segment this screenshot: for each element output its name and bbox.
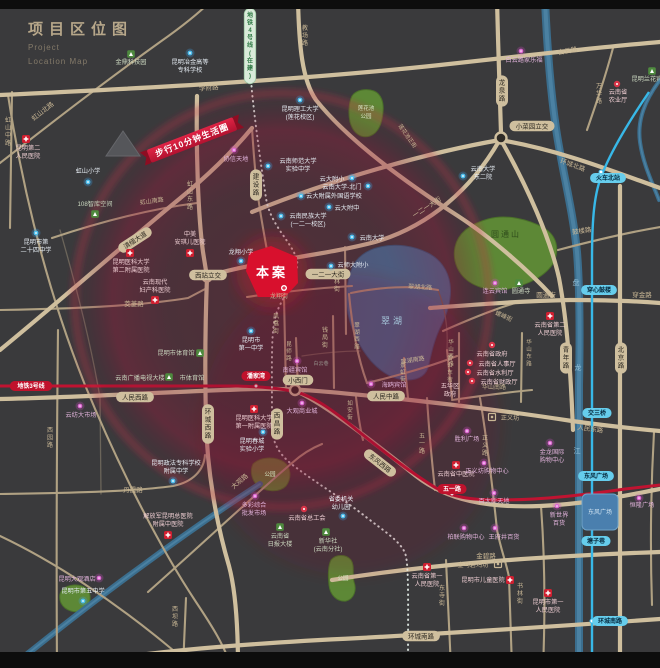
school-icon-dot <box>35 232 37 234</box>
capsule-text: 北京路 <box>618 345 625 369</box>
poi-label: 云南省政府 <box>477 350 508 358</box>
school-icon-dot <box>172 480 174 482</box>
road-label-4: 虹山东路 <box>187 180 193 211</box>
government-icon-dot <box>469 362 471 364</box>
road-label-46: 翠湖 <box>381 316 405 326</box>
school-icon-dot <box>189 52 191 54</box>
poi-label: 昆明市 <box>242 336 261 344</box>
road-label-49: 盘 <box>573 278 580 287</box>
road-label-28: 钱局街 <box>322 326 328 349</box>
poi-label: 云南省财政厅 <box>480 378 517 386</box>
poi-label: (云南分社) <box>314 545 343 553</box>
poi-label: 昆明市第五中学 <box>61 587 104 595</box>
school-icon-dot <box>267 165 269 167</box>
poi-label: 南疆宾馆 <box>283 366 308 374</box>
poi-label: 第二附属医院 <box>112 266 149 274</box>
mall-icon-dot <box>549 442 551 444</box>
road-label-18: 五一路 <box>419 433 425 455</box>
road-label-44: 公园 <box>264 471 276 478</box>
poi-label: 大观商业城 <box>287 407 318 415</box>
government-icon-dot <box>616 83 618 85</box>
poi-label: 云大附属外国语学校 <box>306 192 362 200</box>
interchange-node-2 <box>496 133 507 144</box>
school-icon-dot <box>280 215 282 217</box>
poi-label: 人民医院 <box>415 580 440 588</box>
poi-label: 附属中学 <box>164 467 189 475</box>
road-label-27: 凤翥街 <box>273 313 279 335</box>
capsule-小西门-2: 小西门 <box>283 375 314 386</box>
capsule-text: 穿心鼓楼 <box>587 286 611 294</box>
poi-label: 云南省总工会 <box>288 514 325 522</box>
poi-label: (一二一校区) <box>290 220 325 228</box>
poi-label: 昆明市儿童医院 <box>461 576 504 584</box>
road-label-45: 公园 <box>337 575 349 582</box>
poi-label: 金马碧鸡坊 <box>458 561 489 569</box>
poi-云大附属外国语学校-9: 云大附属外国语学校 <box>297 192 362 201</box>
school-icon-dot <box>351 236 353 238</box>
capsule-text: 塘子巷 <box>587 537 605 545</box>
poi-label: 市体育馆 <box>180 374 205 382</box>
poi-label: 省委机关 <box>329 495 354 503</box>
poi-label: 人民医院 <box>538 329 563 337</box>
road-label-15: 书林街 <box>517 582 523 605</box>
capsule-text: 青年路 <box>563 344 570 369</box>
capsule-text: 地铁4号线(在建) <box>247 11 254 80</box>
school-icon-dot <box>262 431 264 433</box>
poi-label: 人民医院 <box>16 152 41 160</box>
poi-label: 云南大学-北门 <box>322 183 361 191</box>
government-icon-dot <box>491 344 493 346</box>
poi-label: 云南现代 <box>143 278 169 286</box>
poi-label: 108智库空间 <box>77 200 112 208</box>
school-icon-dot <box>299 99 301 101</box>
school-icon-dot <box>82 600 84 602</box>
capsule-text: 环城南路 <box>598 617 623 625</box>
poi-label: 幼儿园 <box>332 503 351 511</box>
poi-label: 协信天地 <box>224 155 249 163</box>
poi-label: 云南大学 <box>471 165 496 173</box>
poi-label: 购物中心 <box>540 456 565 464</box>
site-label: 本案 <box>256 265 288 280</box>
capsule-text: 人民中路 <box>373 391 400 400</box>
road-mid-5 <box>57 330 58 668</box>
road-label-41: 圆通山 <box>491 229 521 239</box>
poi-label: 云南省人事厅 <box>478 360 515 368</box>
poi-label: 柏联购物中心 <box>447 533 484 541</box>
poi-label: 王府井百货 <box>489 533 520 541</box>
capsule-人民中路-4: 人民中路 <box>367 391 405 402</box>
mall-icon-dot <box>638 497 640 499</box>
poi-label: 恒隆广场 <box>630 501 655 509</box>
mall-icon-dot <box>556 505 558 507</box>
school-icon-dot <box>240 260 242 262</box>
poi-label: 海鸥宾馆 <box>382 381 407 389</box>
school-icon-dot <box>367 185 369 187</box>
road-label-42: 莲花池 <box>358 104 375 112</box>
school-icon-dot <box>342 515 344 517</box>
poi-昆明市体育馆-57: 昆明市体育馆 <box>157 349 203 357</box>
road-label-3: 虹山中路 <box>5 116 11 147</box>
mall-icon-dot <box>520 50 522 52</box>
road-label-38: 白云巷 <box>313 360 328 367</box>
poi-label: 正义坊 <box>501 414 520 422</box>
landmark-icon-core <box>497 563 499 565</box>
school-icon-dot <box>462 175 464 177</box>
poi-label: 附属中医院 <box>153 520 184 528</box>
poi-label: 人民医院 <box>536 606 561 614</box>
capsule-text: 环城南路 <box>408 631 435 640</box>
capsule-龙泉路-9: 龙泉路 <box>496 75 508 106</box>
poi-label: 二十四中学 <box>21 246 52 254</box>
capsule-text: 西昌路 <box>274 411 281 435</box>
poi-label: 第一附属医院 <box>235 422 272 430</box>
poi-label: (莲花校区) <box>286 113 315 121</box>
poi-label: 实验中学 <box>286 165 311 173</box>
poi-label: 昆明政法专科学校 <box>151 459 201 467</box>
poi-label: 云纺大市场 <box>66 411 97 419</box>
poi-label: 百货 <box>553 519 565 527</box>
poi-label: 多彩综合 <box>242 501 267 509</box>
road-label-51: 江 <box>574 447 581 455</box>
mall-icon-dot <box>233 149 235 151</box>
mall-icon-dot <box>483 462 485 464</box>
poi-label: 实验小学 <box>240 445 265 453</box>
capsule-环城南路-23: 环城南路 <box>592 616 628 626</box>
capsule-地铁3号线-15: 地铁3号线 <box>10 381 53 391</box>
poi-label: 金龙国际 <box>540 448 565 456</box>
poi-label: 云南民族大学 <box>289 212 326 220</box>
school-icon-dot <box>330 265 332 267</box>
poi-label: 云大附小 <box>320 175 346 183</box>
road-label-23: 穿金路 <box>632 290 652 299</box>
poi-label: 解放军昆明总医院 <box>143 512 193 520</box>
government-icon-dot <box>467 371 469 373</box>
capsule-塘子巷-22: 塘子巷 <box>581 536 610 546</box>
poi-label: 昆明冶金高等 <box>171 58 208 66</box>
government-icon-dot <box>471 380 473 382</box>
poi-label: 云大附中 <box>335 204 360 212</box>
poi-label: 龙翔小学 <box>229 248 254 256</box>
road-label-9: 万华路 <box>596 83 602 105</box>
capsule-小菜园立交-0: 小菜园立交 <box>510 121 555 132</box>
poi-label: 云南省 <box>271 532 290 540</box>
capsule-text: 地铁3号线 <box>17 382 44 390</box>
road-label-35: 西坝路 <box>172 606 178 628</box>
road-label-34: 西园路 <box>47 427 53 449</box>
poi-label: 胜利广场 <box>455 435 480 443</box>
poi-label: 圆通寺 <box>512 287 531 295</box>
capsule-北京路-11: 北京路 <box>615 342 627 373</box>
capsule-五一路-17: 五一路 <box>437 484 466 494</box>
poi-label: 昆明市体育馆 <box>157 349 194 357</box>
poi-label: 农业厅 <box>609 96 628 104</box>
top-black-bar <box>0 0 660 9</box>
road-label-20: 华山东路 <box>526 338 532 367</box>
mall-icon-dot <box>301 402 303 404</box>
capsule-text: 小菜园立交 <box>516 121 549 130</box>
capsule-text: 交三桥 <box>588 409 607 417</box>
poi-label: 昆明春城 <box>240 437 265 445</box>
poi-label: 第一中学 <box>239 344 264 352</box>
map-canvas: 本案步行10分钟生活圈小菜园立交西站立交小西门人民西路人民中路一二一大街环城南路… <box>0 0 660 668</box>
poi-label: 正义坊购物中心 <box>465 467 508 475</box>
road-label-17: 正义路 <box>482 435 488 457</box>
school-icon-dot <box>328 206 330 208</box>
poi-label: 百大新天地 <box>479 497 510 505</box>
poi-label: 云南大学 <box>360 234 385 242</box>
capsule-text: 西站立交 <box>195 270 222 279</box>
capsule-text: 潘家湾 <box>247 372 265 380</box>
school-icon-dot <box>250 330 252 332</box>
mall-icon-dot <box>79 405 81 407</box>
capsule-一二一大街-5: 一二一大街 <box>306 269 351 280</box>
road-label-11: 茭菱路 <box>124 299 144 308</box>
capsule-text: 小西门 <box>288 375 308 384</box>
poi-label: 日报大楼 <box>268 540 293 548</box>
capsule-text: 火车北站 <box>596 174 620 182</box>
poi-label: 新世界 <box>550 511 569 519</box>
road-label-16: 东寺街 <box>439 584 445 607</box>
road-label-14: 金碧路 <box>476 551 496 560</box>
poi-label: 云师大附小 <box>338 261 370 269</box>
mall-icon-dot <box>370 383 372 385</box>
capsule-环城南路-6: 环城南路 <box>402 631 440 642</box>
capsule-text: 龙泉路 <box>499 77 506 102</box>
road-label-33: 如安街 <box>347 399 353 421</box>
bottom-black-bar <box>0 652 660 668</box>
capsule-穿心鼓楼-19: 穿心鼓楼 <box>581 285 617 295</box>
capsule-地铁4号线(在建)-24: 地铁4号线(在建) <box>244 8 256 83</box>
capsule-text: 人民西路 <box>122 392 149 401</box>
capsule-东风广场-21: 东风广场 <box>578 471 614 481</box>
mall-icon-dot <box>296 360 298 362</box>
poi-label: 五华区 <box>441 382 460 390</box>
mall-icon-dot <box>466 430 468 432</box>
mall-icon-dot <box>254 495 256 497</box>
poi-label: 云南广播电视大楼 <box>115 374 165 382</box>
capsule-text: 东风广场 <box>584 472 608 480</box>
road-label-50: 龙 <box>575 363 582 372</box>
road-label-37: 黄公东街 <box>447 354 453 383</box>
poi-label: 中美 <box>184 230 196 238</box>
road-label-32: 昆师路 <box>286 341 292 362</box>
road-label-12: 丹霞路 <box>123 485 143 494</box>
road-label-10: 龙翔街 <box>270 292 288 300</box>
poi-label: 昆明市第 <box>24 238 49 246</box>
school-icon-dot <box>300 195 302 197</box>
capsule-交三桥-20: 交三桥 <box>582 408 611 418</box>
mall-icon-dot <box>98 577 100 579</box>
capsule-西站立交-1: 西站立交 <box>189 270 227 281</box>
poi-label: 云南省第一 <box>412 572 443 580</box>
capsule-潘家湾-16: 潘家湾 <box>241 371 270 381</box>
capsule-青年路-10: 青年路 <box>560 342 572 373</box>
poi-label: 安琪儿医院 <box>175 238 206 246</box>
poi-label: 昆明市第一 <box>533 598 564 606</box>
poi-label: 连云宾馆 <box>483 287 508 295</box>
capsule-text: 五一路 <box>443 485 462 493</box>
road-label-36: 景虹街 <box>400 362 406 383</box>
poi-label: 云南省水利厅 <box>476 369 513 377</box>
school-icon-dot <box>351 177 353 179</box>
road-label-22: 圆通街 <box>536 290 556 299</box>
poi-label: 昆明第二 <box>16 144 41 152</box>
road-label-43: 公园 <box>360 113 372 120</box>
poi-市体育馆-59: 市体育馆 <box>180 374 205 382</box>
poi-label: 妇产科医院 <box>140 286 171 294</box>
mall-icon-dot <box>494 282 496 284</box>
landmark-icon-core <box>491 416 493 418</box>
government-icon-dot <box>303 508 305 510</box>
poi-label: 昆明医科大学 <box>112 258 149 266</box>
poi-label: 云南省第二 <box>535 321 566 329</box>
poi-label: 云南师范大学 <box>279 157 316 165</box>
capsule-text: 建设路 <box>253 171 260 196</box>
poi-label: 昆明理工大学 <box>281 105 318 113</box>
poi-label: 政府 <box>444 390 456 398</box>
poi-label: 专科学校 <box>178 66 203 74</box>
mall-icon-dot <box>463 527 465 529</box>
road-label-48: 东风广场 <box>588 508 612 516</box>
capsule-环城西路-12: 环城西路 <box>202 404 214 443</box>
road-label-26: 文林街 <box>334 270 340 293</box>
capsule-建设路-14: 建设路 <box>250 169 262 200</box>
road-label-6: 教场路 <box>302 24 308 47</box>
mall-icon-dot <box>493 492 495 494</box>
mall-icon-dot <box>494 527 496 529</box>
poi-label: 昆明兰花宾馆 <box>631 75 660 83</box>
poi-label: 昆明大观酒店 <box>58 575 95 583</box>
poi-label: 白云路家乐福 <box>505 56 542 64</box>
capsule-西昌路-13: 西昌路 <box>271 408 283 439</box>
poi-label: 昆明医科大学 <box>235 414 272 422</box>
poi-label: 批发市场 <box>242 509 267 517</box>
location-map: 本案步行10分钟生活圈小菜园立交西站立交小西门人民西路人民中路一二一大街环城南路… <box>0 0 660 668</box>
poi-label: 东二院 <box>474 173 493 181</box>
poi-金马碧鸡坊-63: 金马碧鸡坊 <box>458 561 502 570</box>
capsule-人民西路-3: 人民西路 <box>116 392 154 403</box>
poi-云南广播电视大楼-58: 云南广播电视大楼 <box>115 373 173 382</box>
poi-label: 金鼎科技园 <box>116 58 147 66</box>
poi-label: 新华社 <box>319 537 338 545</box>
poi-label: 虹山小学 <box>76 167 101 175</box>
school-icon-dot <box>87 181 89 183</box>
capsule-火车北站-18: 火车北站 <box>590 173 626 183</box>
poi-label: 云南省 <box>609 88 628 96</box>
